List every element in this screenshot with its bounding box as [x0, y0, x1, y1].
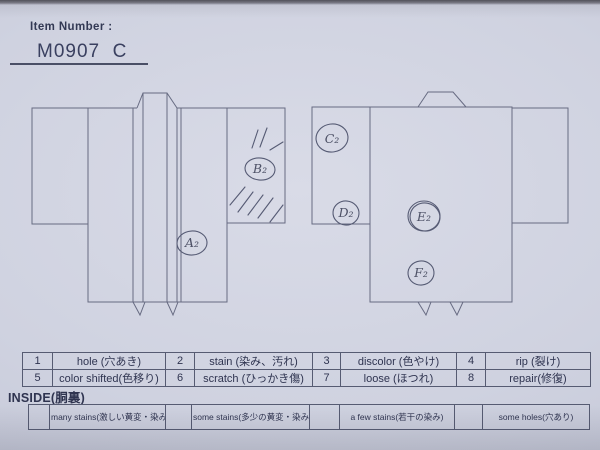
kimono-back-diagram: C₂ D₂ E₂ F₂	[300, 85, 580, 325]
defect-mark-a2-label: A₂	[184, 235, 199, 250]
front-left-sleeve	[32, 108, 88, 224]
defect-mark-c2: C₂	[314, 122, 350, 154]
legend-code-cell: 2	[166, 353, 195, 370]
defect-mark-c2-label: C₂	[325, 131, 340, 146]
inspection-form-page: Item Number : M0907 C A₂ B₂ C₂	[0, 0, 600, 450]
inside-option-cell: a few stains(若干の染み)	[340, 405, 455, 430]
inside-checkbox-cell	[310, 405, 340, 430]
legend-label-cell: rip (裂け)	[486, 353, 591, 370]
defect-mark-d2-label: D₂	[337, 205, 353, 220]
legend-code-cell: 7	[313, 370, 341, 387]
front-body-outline	[88, 108, 227, 302]
defect-legend-table: 1 hole (穴あき) 2 stain (染み、汚れ) 3 discolor …	[22, 352, 591, 387]
legend-label-cell: loose (ほつれ)	[341, 370, 457, 387]
item-number-label: Item Number :	[30, 21, 113, 33]
legend-row: 1 hole (穴あき) 2 stain (染み、汚れ) 3 discolor …	[23, 353, 591, 370]
legend-label-cell: stain (染み、汚れ)	[195, 353, 313, 370]
legend-label-cell: repair(修復)	[486, 370, 591, 387]
inside-option-cell: some holes(穴あり)	[483, 405, 590, 430]
inside-checkbox-cell	[455, 405, 483, 430]
inside-checkbox-cell	[166, 405, 192, 430]
legend-label-cell: hole (穴あき)	[53, 353, 166, 370]
legend-code-cell: 8	[457, 370, 486, 387]
legend-code-cell: 3	[313, 353, 341, 370]
defect-mark-b2-label: B₂	[252, 161, 267, 176]
inside-row: many stains(激しい黄変・染み) some stains(多少の黄変・…	[29, 405, 590, 430]
inside-checkbox-cell	[29, 405, 50, 430]
front-collar-bands	[133, 93, 181, 302]
defect-mark-e2: E₂	[407, 200, 442, 234]
legend-code-cell: 6	[166, 370, 195, 387]
back-collar-tips	[418, 302, 463, 315]
legend-label-cell: discolor (色やけ)	[341, 353, 457, 370]
defect-mark-b2: B₂	[244, 156, 276, 181]
kimono-front-diagram: A₂ B₂	[20, 85, 300, 325]
legend-row: 5 color shifted(色移り) 6 scratch (ひっかき傷) 7…	[23, 370, 591, 387]
legend-label-cell: scratch (ひっかき傷)	[195, 370, 313, 387]
defect-mark-d2: D₂	[332, 200, 360, 226]
legend-code-cell: 4	[457, 353, 486, 370]
item-number-value: M0907 C	[37, 41, 127, 63]
back-collar-top	[418, 92, 466, 107]
legend-code-cell: 1	[23, 353, 53, 370]
photo-top-edge	[0, 0, 600, 5]
legend-label-cell: color shifted(色移り)	[53, 370, 166, 387]
back-right-sleeve	[512, 108, 568, 223]
back-body	[370, 107, 512, 302]
defect-mark-e2-label: E₂	[416, 209, 431, 224]
front-collar-tips	[133, 302, 178, 315]
item-number-underline	[10, 63, 148, 65]
legend-code-cell: 5	[23, 370, 53, 387]
inside-condition-table: many stains(激しい黄変・染み) some stains(多少の黄変・…	[28, 404, 590, 430]
inside-option-cell: some stains(多少の黄変・染み)	[192, 405, 310, 430]
defect-mark-f2: F₂	[407, 260, 435, 287]
inside-option-cell: many stains(激しい黄変・染み)	[50, 405, 166, 430]
defect-mark-f2-label: F₂	[413, 265, 428, 280]
